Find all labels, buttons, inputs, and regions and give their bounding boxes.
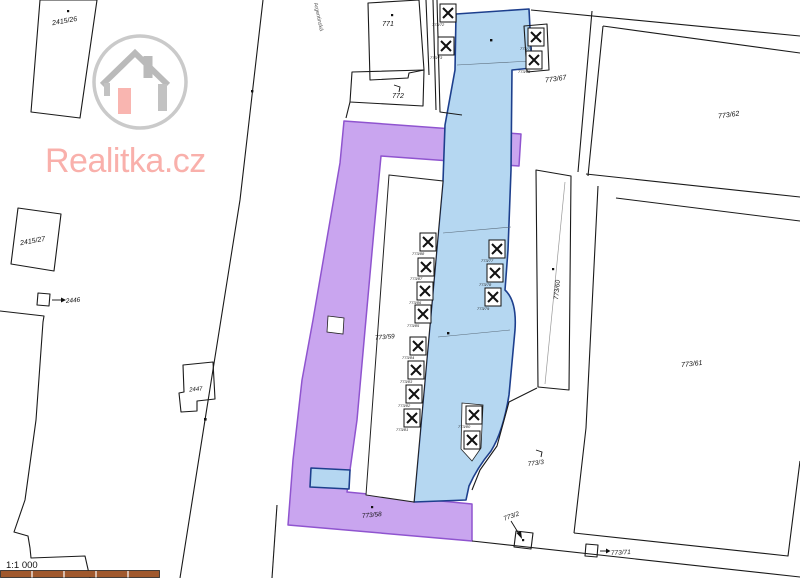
point-marker — [391, 14, 393, 16]
garage-square-773-77 — [489, 240, 505, 258]
garage-label: 773/72 — [432, 22, 445, 27]
garage-square-773-81 — [404, 409, 420, 427]
scale-text: 1:1 000 — [6, 560, 38, 571]
point-marker — [67, 10, 69, 12]
garage-label: 773/85 — [407, 323, 420, 328]
corner-mark-773-3 — [536, 450, 542, 457]
parcel-label-2415-26: 2415/26 — [51, 16, 78, 27]
garage-square-773-84 — [410, 337, 426, 355]
garage-square-773-87 — [418, 258, 434, 276]
parcel-label-2446: 2446 — [65, 297, 81, 305]
garage-square-773-79 — [485, 288, 501, 306]
point-marker — [371, 506, 373, 508]
parcel-label-771: 771 — [382, 21, 394, 28]
garage-square-773-73 — [438, 37, 454, 55]
point-marker — [552, 268, 554, 270]
garage-label: 773/78 — [479, 282, 492, 287]
parcel-left-large-boundary — [0, 311, 90, 578]
watermark-logo — [94, 36, 186, 128]
point-marker — [204, 418, 207, 421]
map-canvas: 773/72 773/73 773/74 773/75 773/77 773/7… — [0, 0, 800, 578]
garage-square-773-80 — [466, 406, 482, 424]
house-wall-right-icon — [158, 84, 167, 111]
parcel-label-2415-27: 2415/27 — [19, 236, 47, 248]
boundary-bottom-right-street — [472, 541, 800, 577]
street-line-west — [180, 0, 263, 578]
garage-square-773-83 — [408, 361, 424, 379]
point-marker — [522, 539, 524, 541]
parcel-772-step — [346, 102, 350, 118]
garage-label: 773/86 — [409, 300, 422, 305]
house-wall-left-icon — [104, 83, 110, 96]
boundary-band-upper — [586, 174, 800, 197]
corner-mark-772 — [394, 85, 400, 92]
parcel-771 — [368, 0, 424, 80]
garage-label: 773/88 — [412, 251, 425, 256]
garage-square-773-72 — [440, 4, 456, 22]
garage-square-773-85 — [415, 305, 431, 323]
garage-square-773-82 — [406, 385, 422, 403]
brand-wordmark: Realitka.cz — [45, 142, 206, 180]
garage-square-773-75 — [526, 51, 542, 69]
garage-square-extra — [464, 431, 480, 449]
house-roof-icon — [102, 53, 168, 85]
parcel-label-772: 772 — [392, 93, 404, 100]
garage-square-773-74 — [528, 28, 544, 46]
boundary-vertical-pair — [578, 11, 603, 176]
parcel-label-773-2: 773/2 — [503, 510, 521, 522]
parcel-773-61-bottom — [574, 461, 800, 556]
garage-label: 773/80 — [458, 424, 471, 429]
parcel-773-60-strip — [536, 170, 571, 390]
arrow-2446 — [52, 298, 66, 303]
parcel-label-773-61: 773/61 — [681, 360, 703, 369]
boundary-band-lower — [616, 198, 800, 221]
garage-label: 773/81 — [396, 427, 408, 432]
garage-label: 773/87 — [410, 276, 423, 281]
street-name-label: Argentinská — [312, 2, 324, 33]
garage-square-773-78 — [487, 264, 503, 282]
parcel-772 — [350, 70, 424, 106]
point-marker — [447, 332, 449, 334]
highlighted-parcel-blue-notch[interactable] — [310, 468, 350, 489]
house-door-icon — [118, 88, 131, 114]
parcel-label-773-71: 773/71 — [611, 549, 632, 557]
garage-label: 773/84 — [402, 355, 415, 360]
arrow-773-71 — [600, 549, 611, 554]
garage-label: 773/83 — [400, 379, 413, 384]
garage-label: 773/82 — [398, 403, 411, 408]
parcel-773-61-west — [574, 186, 598, 533]
parcel-label-773-67: 773/67 — [545, 74, 568, 84]
garage-label: 773/73 — [430, 55, 443, 60]
garage-label: 773/74 — [520, 46, 533, 51]
garage-label: 773/75 — [518, 69, 531, 74]
parcel-2446-square — [37, 293, 50, 306]
purple-notch-white — [327, 316, 344, 334]
point-marker — [490, 39, 492, 41]
garage-square-773-86 — [417, 282, 433, 300]
parcel-label-2447: 2447 — [188, 386, 203, 393]
garage-square-773-88 — [420, 233, 436, 251]
parcel-label-773-62: 773/62 — [718, 111, 740, 121]
boundary-773-62-outer — [531, 10, 800, 36]
boundary-bottom-center — [272, 505, 277, 578]
point-marker — [251, 90, 253, 92]
boundary-773-62-inner — [603, 26, 800, 53]
scale-bar — [1, 571, 160, 578]
garage-label: 773/77 — [481, 258, 494, 263]
garage-label: 773/79 — [477, 306, 490, 311]
cadastral-map: 773/72 773/73 773/74 773/75 773/77 773/7… — [0, 0, 800, 578]
arrow-773-2 — [511, 521, 522, 539]
parcel-label-773-3: 773/3 — [527, 459, 544, 468]
